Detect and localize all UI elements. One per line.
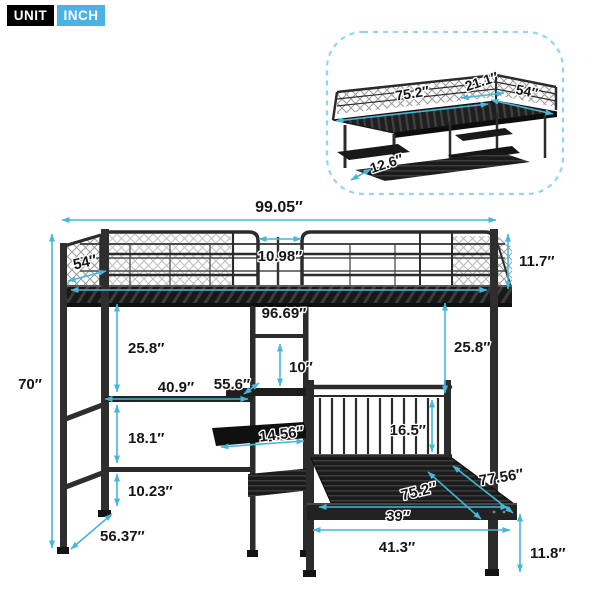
dim-label: 11.7″ [519, 253, 555, 270]
bed-diagram-svg: 99.05″ 10.98″ 11.7″ 54″ 96.69″ 25.8″ [0, 0, 600, 600]
dim-label: 11.8″ [530, 545, 566, 562]
dim-label: 18.1″ [128, 430, 164, 447]
dim-leg-height: 11.8″ [520, 514, 566, 572]
dim-label: 10.23″ [128, 483, 173, 500]
dim-headboard-height: 16.5″ [390, 400, 432, 452]
dim-label: 77.56″ [478, 466, 525, 490]
inset-view: 75.2″ 21.1″ 54″ 12.6″ [327, 32, 563, 194]
lower-brace [106, 467, 252, 472]
product-dimension-diagram: UNIT INCH [0, 0, 600, 600]
dim-bed-total-width: 41.3″ [313, 530, 510, 556]
dim-label: 40.9″ [158, 379, 194, 396]
dim-label: 99.05″ [255, 199, 303, 216]
dim-label: 10″ [289, 359, 313, 376]
dim-guard-height: 11.7″ [508, 234, 555, 289]
dim-overall-height: 70″ [18, 234, 52, 548]
dim-label: 25.8″ [454, 339, 490, 356]
dim-label: 41.3″ [379, 539, 415, 556]
dim-base-depth: 56.37″ [71, 514, 145, 549]
dim-label: 96.69″ [262, 305, 307, 322]
bed-front-rail [307, 503, 517, 520]
dim-label: 16.5″ [390, 422, 426, 439]
dim-label: 10.98″ [258, 248, 303, 265]
dim-desk-to-shelf: 18.1″ [117, 405, 164, 463]
dim-label: 70″ [18, 376, 42, 393]
dim-label: 39″ [386, 508, 410, 525]
dim-right-clearance: 25.8″ [445, 303, 490, 393]
dim-guard-gap: 10.98″ [258, 239, 303, 265]
dim-label: 56.37″ [100, 528, 145, 545]
lower-shelf [248, 468, 312, 497]
dim-overall-length: 99.05″ [62, 199, 496, 220]
dim-shelf-to-floor: 10.23″ [117, 474, 173, 506]
dim-label: 55.6″ [214, 376, 250, 393]
dim-label: 25.8″ [128, 340, 164, 357]
